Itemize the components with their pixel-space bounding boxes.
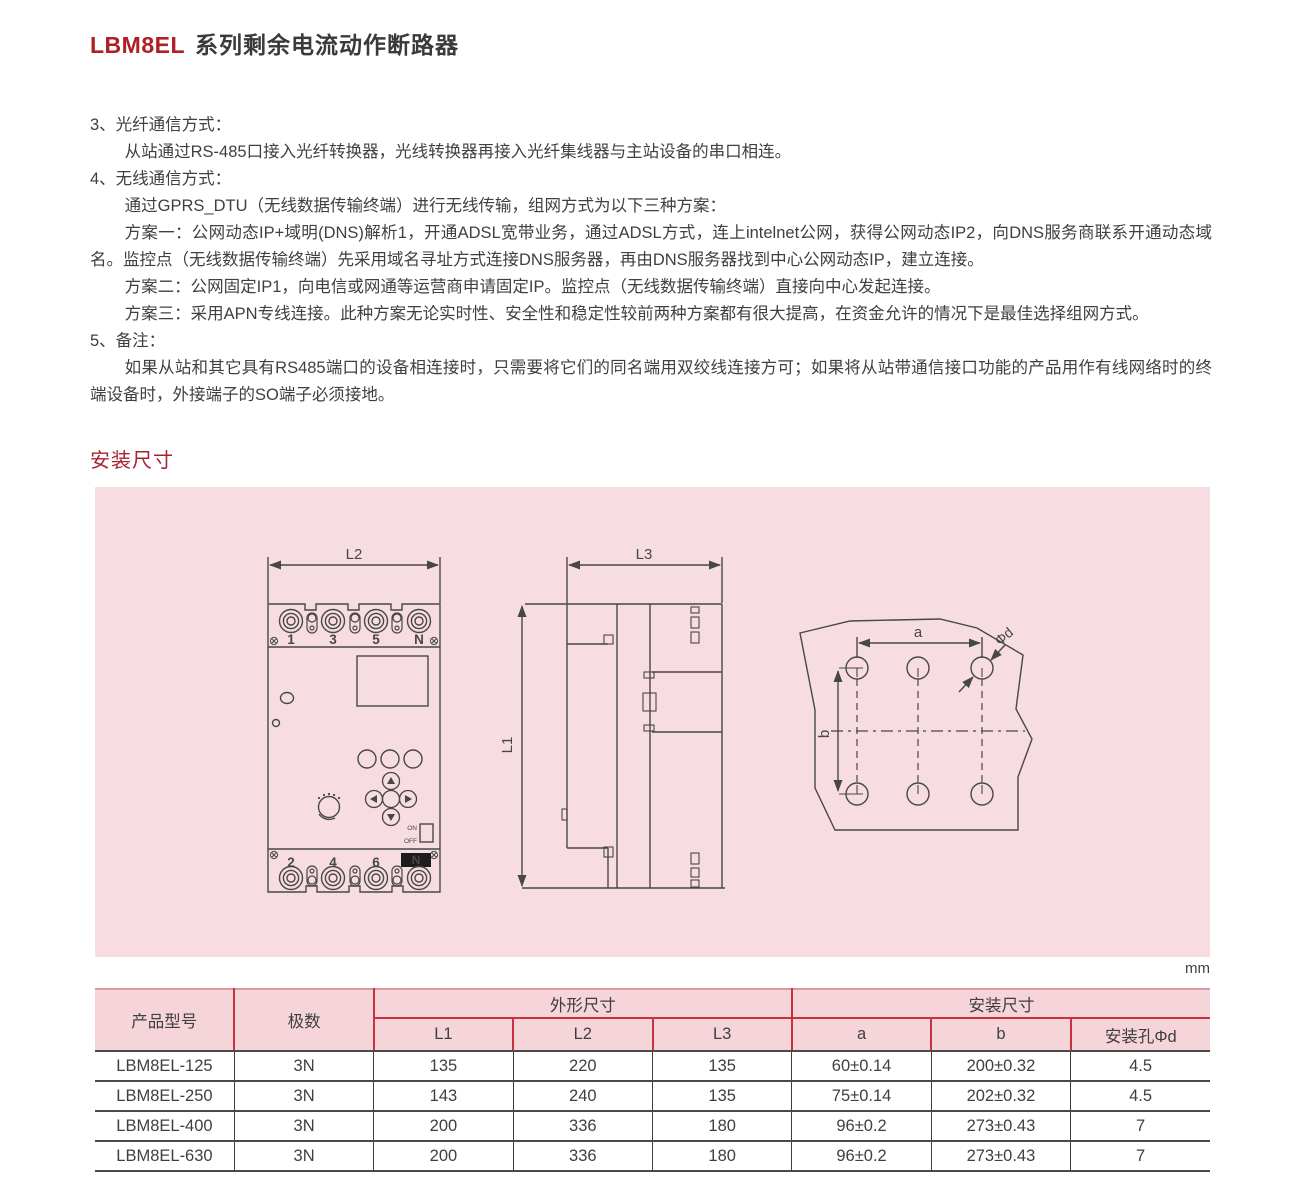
- col-header-l1: L1: [374, 1018, 513, 1051]
- cell-l3: 135: [653, 1081, 792, 1111]
- display-window: [357, 656, 428, 706]
- section-heading-installation-dimensions: 安装尺寸: [90, 444, 174, 473]
- indicator-lights: [358, 750, 422, 768]
- cell-hole-diameter: 4.5: [1071, 1051, 1210, 1081]
- terminal-label: 6: [372, 855, 380, 870]
- body-text-block: 3、光纤通信方式： 从站通过RS-485口接入光纤转换器，光线转换器再接入光纤集…: [90, 112, 1212, 409]
- table-unit-label: mm: [95, 960, 1210, 977]
- up-arrow-icon: [387, 777, 395, 784]
- cell-hole-diameter: 7: [1071, 1141, 1210, 1171]
- cell-model: LBM8EL-125: [95, 1051, 234, 1081]
- on-off-switch: [420, 824, 433, 842]
- table-row: LBM8EL-250 3N 143 240 135 75±0.14 202±0.…: [95, 1081, 1210, 1111]
- cell-b: 202±0.32: [931, 1081, 1070, 1111]
- dim-label-a: a: [914, 624, 923, 641]
- right-arrow-icon: [405, 795, 412, 803]
- dim-label-hole-diameter: Φd: [991, 624, 1016, 648]
- dim-label-l1: L1: [499, 737, 516, 754]
- front-view-drawing: L2: [268, 546, 440, 892]
- col-group-outline-dimensions: 外形尺寸: [374, 989, 792, 1018]
- cell-l2: 336: [513, 1141, 652, 1171]
- cell-a: 96±0.2: [792, 1111, 931, 1141]
- terminal-label: N: [414, 632, 424, 647]
- cell-hole-diameter: 4.5: [1071, 1081, 1210, 1111]
- cell-l1: 200: [374, 1111, 513, 1141]
- terminal-label: 3: [329, 632, 337, 647]
- cell-l3: 135: [653, 1051, 792, 1081]
- dim-label-b: b: [816, 730, 833, 738]
- din-rail-clips: [691, 607, 699, 887]
- cell-l3: 180: [653, 1141, 792, 1171]
- installation-dimensions-panel: L2: [95, 487, 1210, 957]
- body-paragraph: 5、备注：: [90, 328, 1212, 355]
- table-row: LBM8EL-400 3N 200 336 180 96±0.2 273±0.4…: [95, 1111, 1210, 1141]
- cell-model: LBM8EL-250: [95, 1081, 234, 1111]
- dim-label-l2: L2: [346, 546, 363, 563]
- cell-poles: 3N: [234, 1141, 373, 1171]
- cell-a: 96±0.2: [792, 1141, 931, 1171]
- on-label: ON: [407, 825, 417, 832]
- page-title-text: 系列剩余电流动作断路器: [195, 32, 459, 58]
- col-header-a: a: [792, 1018, 931, 1051]
- cell-l2: 336: [513, 1111, 652, 1141]
- body-paragraph: 4、无线通信方式：: [90, 166, 1212, 193]
- col-header-poles: 极数: [234, 989, 373, 1051]
- cell-b: 200±0.32: [931, 1051, 1070, 1081]
- cell-poles: 3N: [234, 1051, 373, 1081]
- cell-a: 60±0.14: [792, 1051, 931, 1081]
- cell-b: 273±0.43: [931, 1111, 1070, 1141]
- cell-model: LBM8EL-400: [95, 1111, 234, 1141]
- body-paragraph: 方案三：采用APN专线连接。此种方案无论实时性、安全性和稳定性较前两种方案都有很…: [90, 301, 1212, 328]
- rotary-knob: [318, 793, 340, 819]
- terminal-label: 1: [287, 632, 295, 647]
- side-view-drawing: L3 L1: [499, 546, 725, 888]
- cell-b: 273±0.43: [931, 1141, 1070, 1171]
- dpad-buttons: [366, 773, 417, 826]
- col-header-hole-diameter: 安装孔Φd: [1071, 1018, 1210, 1051]
- dimension-table: 产品型号 极数 外形尺寸 安装尺寸 L1 L2 L3 a b 安装孔Φd LBM…: [95, 988, 1210, 1172]
- body-paragraph: 从站通过RS-485口接入光纤转换器，光线转换器再接入光纤集线器与主站设备的串口…: [90, 139, 1212, 166]
- left-arrow-icon: [370, 795, 377, 803]
- installation-diagram: L2: [95, 487, 1210, 957]
- cell-a: 75±0.14: [792, 1081, 931, 1111]
- cell-poles: 3N: [234, 1111, 373, 1141]
- neutral-badge-label: N: [412, 853, 421, 867]
- cell-l2: 220: [513, 1051, 652, 1081]
- terminal-label: 4: [329, 855, 337, 870]
- col-header-l2: L2: [513, 1018, 652, 1051]
- table-row: LBM8EL-630 3N 200 336 180 96±0.2 273±0.4…: [95, 1141, 1210, 1171]
- body-paragraph: 方案一：公网动态IP+域明(DNS)解析1，开通ADSL宽带业务，通过ADSL方…: [90, 220, 1212, 274]
- cell-l3: 180: [653, 1111, 792, 1141]
- down-arrow-icon: [387, 814, 395, 821]
- col-header-product-model: 产品型号: [95, 989, 234, 1051]
- col-group-mounting-dimensions: 安装尺寸: [792, 989, 1210, 1018]
- cell-l2: 240: [513, 1081, 652, 1111]
- terminal-label: 2: [287, 855, 295, 870]
- cell-poles: 3N: [234, 1081, 373, 1111]
- body-paragraph: 如果从站和其它具有RS485端口的设备相连接时，只需要将它们的同名端用双绞线连接…: [90, 355, 1212, 409]
- cell-model: LBM8EL-630: [95, 1141, 234, 1171]
- off-label: OFF: [404, 838, 417, 845]
- cell-l1: 135: [374, 1051, 513, 1081]
- dimension-table-wrap: 产品型号 极数 外形尺寸 安装尺寸 L1 L2 L3 a b 安装孔Φd LBM…: [95, 988, 1210, 1172]
- cell-l1: 200: [374, 1141, 513, 1171]
- table-row: LBM8EL-125 3N 135 220 135 60±0.14 200±0.…: [95, 1051, 1210, 1081]
- col-header-l3: L3: [653, 1018, 792, 1051]
- body-paragraph: 通过GPRS_DTU（无线数据传输终端）进行无线传输，组网方式为以下三种方案：: [90, 193, 1212, 220]
- product-series-code: LBM8EL: [90, 32, 185, 58]
- cell-l1: 143: [374, 1081, 513, 1111]
- dim-label-l3: L3: [636, 546, 653, 563]
- cell-hole-diameter: 7: [1071, 1111, 1210, 1141]
- page-title: LBM8EL系列剩余电流动作断路器: [90, 26, 459, 60]
- terminal-label: 5: [372, 632, 380, 647]
- col-header-b: b: [931, 1018, 1070, 1051]
- catalog-page: LBM8EL系列剩余电流动作断路器 3、光纤通信方式： 从站通过RS-485口接…: [0, 0, 1300, 1195]
- body-paragraph: 方案二：公网固定IP1，向电信或网通等运营商申请固定IP。监控点（无线数据传输终…: [90, 274, 1212, 301]
- mounting-hole-drawing: a b Φd: [800, 619, 1032, 830]
- body-paragraph: 3、光纤通信方式：: [90, 112, 1212, 139]
